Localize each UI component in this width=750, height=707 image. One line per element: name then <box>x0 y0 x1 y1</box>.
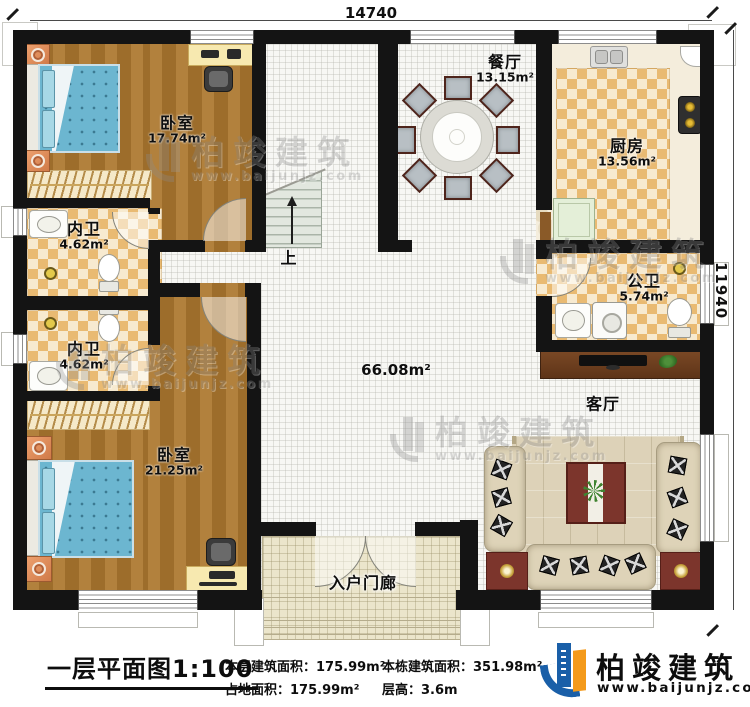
room-area: 21.25m² <box>145 464 203 478</box>
brand-url: www.baijunjz.com <box>597 680 750 696</box>
room-label-inner-bath2: 内卫 4.62m² <box>59 341 108 372</box>
cushion <box>490 514 513 537</box>
wall <box>415 522 460 536</box>
room-area: 13.56m² <box>598 155 656 169</box>
cushion <box>624 552 647 575</box>
window <box>13 208 27 236</box>
stat-row: 本层建筑面积：175.99m² <box>225 656 385 679</box>
toilet <box>666 298 693 338</box>
stairs-up-label: 上 <box>280 250 297 267</box>
wall <box>13 198 150 208</box>
pillow <box>42 512 55 554</box>
window <box>700 434 714 542</box>
sofa-left <box>484 446 526 552</box>
stove <box>678 96 702 134</box>
dimension-tick <box>706 6 718 18</box>
desk <box>186 566 254 592</box>
room-label-living: 客厅 <box>586 396 620 413</box>
stairs-up-text: 上 <box>280 250 297 267</box>
wall <box>13 30 27 610</box>
porch-step <box>262 620 460 621</box>
cushion <box>491 487 512 508</box>
stats-column-2: 本栋建筑面积：351.98m² 层高：3.6m <box>382 656 542 702</box>
pillow <box>42 468 55 510</box>
desk <box>188 44 254 66</box>
window <box>190 30 254 44</box>
stat-row: 占地面积：175.99m² <box>225 679 385 702</box>
shower-head <box>673 262 686 275</box>
window <box>558 30 657 44</box>
wall <box>378 30 398 252</box>
room-label-dining: 餐厅 13.15m² <box>476 54 534 85</box>
room-area: 17.74m² <box>148 132 206 146</box>
cushion <box>491 459 513 481</box>
wall <box>536 30 552 210</box>
plant <box>583 480 605 502</box>
room-area: 4.62m² <box>59 358 108 372</box>
shower-head <box>44 267 57 280</box>
room-name: 餐厅 <box>476 54 534 71</box>
room-name: 卧室 <box>148 115 206 132</box>
room-label-porch: 入户门廊 <box>329 575 397 592</box>
window <box>78 590 198 610</box>
room-area: 66.08m² <box>361 363 431 377</box>
dining-table <box>420 100 494 174</box>
room-area: 13.15m² <box>476 71 534 85</box>
window <box>410 30 515 44</box>
desk-item <box>209 571 235 579</box>
room-label-bedroom2: 卧室 21.25m² <box>145 447 203 478</box>
room-label-public-bath: 公卫 5.74m² <box>619 273 668 304</box>
wardrobe <box>27 400 150 430</box>
dining-chair <box>444 76 472 100</box>
hall-area-label: 66.08m² <box>361 363 431 377</box>
wall <box>148 283 200 297</box>
room-area: 5.74m² <box>619 290 668 304</box>
stat-label: 本栋建筑面积： <box>382 660 473 675</box>
wall <box>536 240 714 253</box>
stat-label: 本层建筑面积： <box>225 660 316 675</box>
room-name: 公卫 <box>619 273 668 290</box>
tv <box>579 355 647 366</box>
fridge <box>553 198 595 242</box>
bed-blanket-fold <box>52 66 82 151</box>
wall <box>536 340 714 352</box>
kitchen-sink <box>590 46 628 68</box>
pillow <box>42 70 55 108</box>
porch-step <box>262 597 460 598</box>
dining-chair <box>444 176 472 200</box>
wall <box>378 240 412 252</box>
bed <box>38 64 120 153</box>
wall <box>536 253 552 259</box>
bed <box>38 460 134 558</box>
room-area: 4.62m² <box>59 238 108 252</box>
desk-item <box>199 582 237 586</box>
desk-chair <box>204 66 233 92</box>
nightstand <box>26 150 50 172</box>
window-sill <box>538 612 654 628</box>
plant-decor <box>659 355 677 368</box>
plan-title-text: 一层平面图 <box>47 655 172 683</box>
window <box>13 334 27 364</box>
stair-arrow-head <box>287 196 297 206</box>
wall <box>261 522 316 536</box>
stat-label: 层高： <box>382 683 421 698</box>
wall <box>247 283 261 610</box>
stats-column-1: 本层建筑面积：175.99m² 占地面积：175.99m² <box>225 656 385 702</box>
tv-cabinet <box>540 348 702 379</box>
washing-machine <box>592 302 627 339</box>
room-label-kitchen: 厨房 13.56m² <box>598 138 656 169</box>
cushion <box>539 555 560 576</box>
logo-building-blue <box>557 643 571 687</box>
dimension-right: 11940 <box>712 262 730 319</box>
side-table-lamp <box>486 552 528 590</box>
stair-arrow <box>291 206 293 244</box>
side-table-lamp <box>660 552 702 590</box>
room-name: 卧室 <box>145 447 203 464</box>
room-name: 厨房 <box>598 138 656 155</box>
stat-value: 175.99m² <box>290 683 359 698</box>
nightstand <box>26 556 52 582</box>
wardrobe <box>27 170 152 200</box>
dimension-line-right <box>733 30 734 610</box>
stat-value: 175.99m² <box>316 660 385 675</box>
bed-blanket-fold <box>52 462 82 556</box>
desk-item <box>227 49 241 59</box>
kitchen-door-leaf <box>540 212 551 240</box>
stat-label: 占地面积： <box>225 683 290 698</box>
wall <box>252 44 266 252</box>
room-label-inner-bath1: 内卫 4.62m² <box>59 221 108 252</box>
nightstand <box>26 436 52 460</box>
shower-head <box>44 317 57 330</box>
cushion <box>668 456 688 476</box>
wall <box>148 208 160 214</box>
pillow <box>42 110 55 148</box>
stat-row: 本栋建筑面积：351.98m² <box>382 656 542 679</box>
desk-chair <box>206 538 236 566</box>
cushion <box>599 555 621 577</box>
stat-value: 3.6m <box>421 683 458 698</box>
logo-building-orange <box>573 649 586 692</box>
brand-logo-icon <box>542 643 592 701</box>
nightstand <box>26 44 50 65</box>
desk-item <box>201 50 219 58</box>
bathroom-sink <box>555 303 591 338</box>
stat-row: 层高：3.6m <box>382 679 542 702</box>
dimension-tick <box>6 8 18 20</box>
dimension-tick <box>706 624 718 636</box>
wall <box>245 240 266 252</box>
room-label-bedroom1: 卧室 17.74m² <box>148 115 206 146</box>
dining-chair <box>496 126 520 154</box>
room-name: 入户门廊 <box>329 575 397 592</box>
dimension-top: 14740 <box>345 4 397 22</box>
wall <box>460 520 478 610</box>
sofa-right <box>656 442 702 554</box>
floor-plan-canvas: 卧室 17.74m² 内卫 4.62m² 内卫 4.62m² 卧室 21.25m… <box>0 0 750 707</box>
porch-step <box>262 634 460 635</box>
cushion <box>666 518 689 541</box>
window <box>540 590 652 610</box>
cushion <box>667 487 689 509</box>
toilet <box>97 254 121 292</box>
window-sill <box>78 612 198 628</box>
room-name: 内卫 <box>59 221 108 238</box>
room-name: 内卫 <box>59 341 108 358</box>
window-sill <box>714 434 729 542</box>
stat-value: 351.98m² <box>473 660 542 675</box>
wall <box>13 296 160 310</box>
wall <box>13 391 160 401</box>
sofa-bottom <box>526 544 656 590</box>
cushion <box>570 556 590 576</box>
room-name: 客厅 <box>586 396 620 413</box>
porch-step <box>262 627 460 628</box>
